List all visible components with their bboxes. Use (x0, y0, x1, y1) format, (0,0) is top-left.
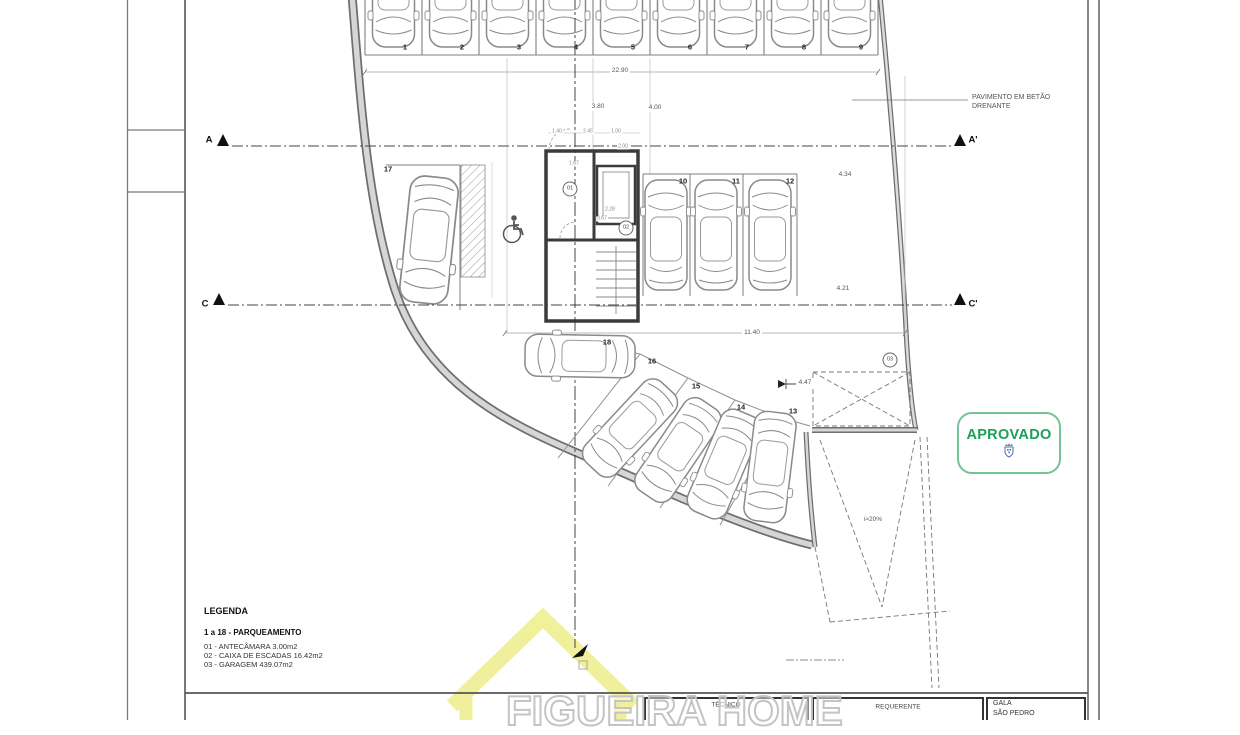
dim-label: 4.47 (797, 380, 814, 387)
dim-label: 4.00 (647, 105, 664, 112)
dim-label: 4.21 (835, 286, 852, 293)
top-row-cars (368, 0, 875, 47)
parking-number: 5 (631, 43, 635, 52)
stall-17 (386, 165, 485, 310)
wheelchair-icon (504, 215, 524, 242)
dim-label-micro: 1.40 (551, 130, 563, 135)
diagonal-cars (525, 330, 802, 525)
ramp-slope-label: i≈20% (862, 517, 884, 524)
parking-number: 14 (737, 403, 745, 412)
mid-row-cars (641, 180, 796, 290)
parking-number: 11 (732, 177, 740, 186)
section-label: C' (968, 299, 977, 310)
room-bubble: 01 (563, 182, 578, 197)
parking-number: 9 (859, 43, 863, 52)
legend-item: 02 - CAIXA DE ESCADAS 16.42m2 (204, 651, 323, 660)
hatched-area (461, 165, 485, 277)
legend-subtitle: 1 a 18 - PARQUEAMENTO (204, 628, 302, 637)
parking-number: 7 (745, 43, 749, 52)
room-bubble: 03 (883, 353, 898, 368)
municipal-crest-icon (1002, 443, 1016, 458)
titleblock-location-line2: SÃO PEDRO (993, 710, 1035, 717)
dim-label-micro: 1.00 (610, 130, 622, 135)
approval-stamp: APROVADO (957, 412, 1061, 474)
section-label: C (202, 299, 209, 310)
dim-label-micro: 2.00 (617, 145, 629, 150)
parking-number: 6 (688, 43, 692, 52)
dim-label-micro: 2.28 (604, 208, 616, 213)
parking-number: 13 (789, 407, 797, 416)
section-label: A' (968, 135, 977, 146)
parking-number: 12 (786, 177, 794, 186)
dim-label: 4.34 (837, 172, 854, 179)
floor-plan-drawing (0, 0, 1240, 720)
parking-number: 1 (403, 43, 407, 52)
car-17 (393, 174, 465, 306)
level-marker (778, 379, 796, 389)
dim-label-micro: 1.67 (568, 162, 580, 167)
parking-number: 10 (679, 177, 687, 186)
titleblock-location-line1: GALA (993, 700, 1012, 707)
drawing-sheet: { "plan": { "parking_numbers": ["1","2",… (0, 0, 1240, 720)
dim-label-micro: 3.67 (596, 217, 608, 222)
titleblock-requerente-label: REQUERENTE (875, 704, 920, 711)
section-line-a (217, 134, 966, 146)
ramp (786, 432, 950, 688)
pavement-note-line2: DRENANTE (972, 102, 1050, 111)
room-bubble: 02 (619, 221, 634, 236)
parking-number: 17 (384, 165, 392, 174)
section-label: A (206, 135, 213, 146)
parking-number: 3 (517, 43, 521, 52)
dim-label: 3.80 (590, 104, 607, 111)
parking-number: 16 (648, 357, 656, 366)
parking-number: 4 (574, 43, 578, 52)
parking-number: 18 (603, 338, 611, 347)
parking-number: 2 (460, 43, 464, 52)
parking-number: 8 (802, 43, 806, 52)
watermark-text: FIGUEIRA HOME (506, 687, 843, 735)
pavement-note-line1: PAVIMENTO EM BETÃO (972, 93, 1050, 102)
legend-item: 03 - GARAGEM 439.07m2 (204, 660, 293, 669)
pavement-note: PAVIMENTO EM BETÃO DRENANTE (972, 93, 1050, 111)
dim-label: 22.90 (610, 68, 630, 75)
door-projection-box (813, 372, 910, 426)
legend-item: 01 - ANTECÂMARA 3.00m2 (204, 642, 297, 651)
centerline-arrow (572, 644, 588, 658)
dim-label-micro: 2.45 (582, 130, 594, 135)
approval-stamp-label: APROVADO (966, 428, 1051, 443)
parking-number: 15 (692, 382, 700, 391)
legend-title: LEGENDA (204, 606, 248, 616)
dim-label: 11.40 (742, 330, 762, 337)
